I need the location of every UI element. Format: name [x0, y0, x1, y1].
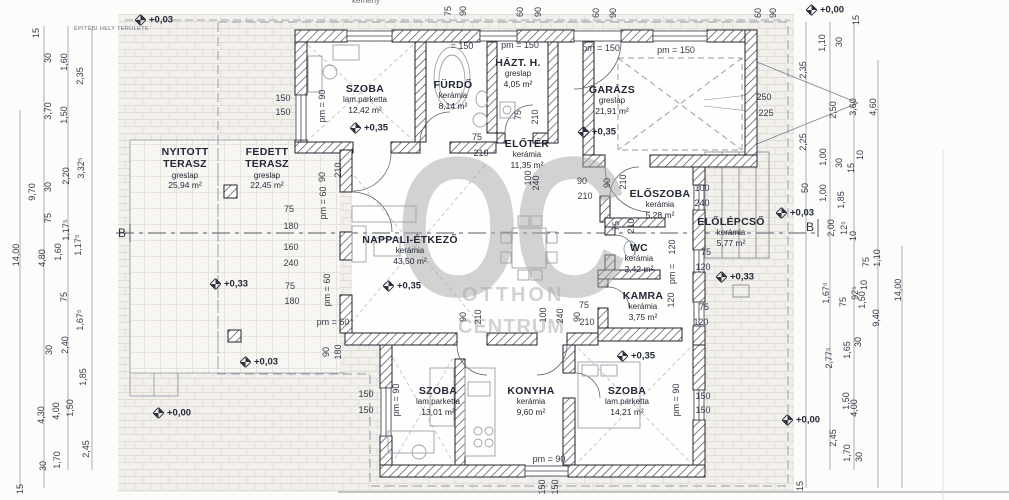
section-marker-b-left: B — [118, 226, 126, 240]
plan-geometry — [0, 0, 1009, 500]
section-marker-b-right: B — [806, 220, 814, 234]
floor-plan-canvas: OC OTTHON CENTRUM SZOBAlam.parketta12,42… — [0, 0, 1009, 500]
site-area-label: ÉPÍTÉSI HELY TERÜLETE — [74, 26, 149, 32]
chimney-label: kémény — [352, 0, 380, 5]
